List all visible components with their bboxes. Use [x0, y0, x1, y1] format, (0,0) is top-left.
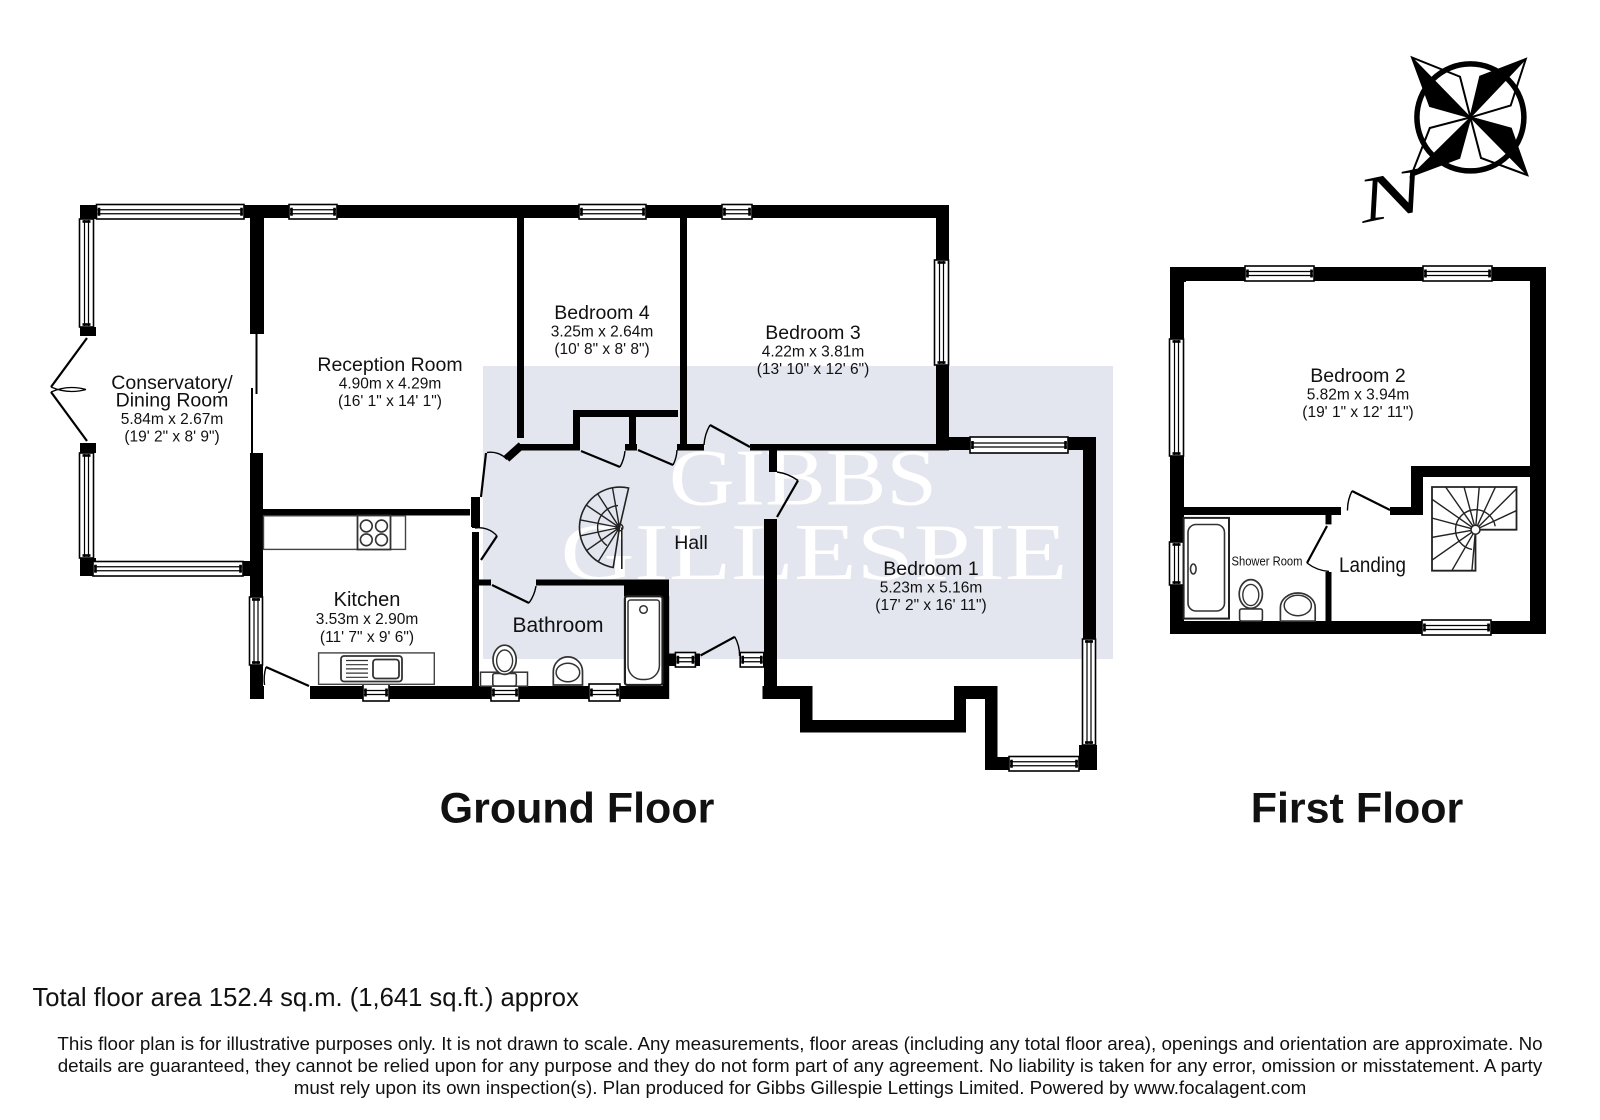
svg-text:(11' 7" x 9' 6"): (11' 7" x 9' 6"): [320, 629, 414, 646]
svg-text:(19' 2" x 8' 9"): (19' 2" x 8' 9"): [124, 429, 219, 446]
svg-text:(13' 10" x 12' 6"): (13' 10" x 12' 6"): [757, 361, 870, 378]
svg-text:must rely upon its own inspect: must rely upon its own inspection(s). Pl…: [294, 1077, 1307, 1098]
svg-text:Ground Floor: Ground Floor: [440, 785, 715, 833]
svg-text:Kitchen: Kitchen: [334, 589, 401, 611]
svg-text:5.84m x 2.67m: 5.84m x 2.67m: [121, 411, 224, 428]
svg-text:Hall: Hall: [674, 532, 708, 554]
svg-text:Bathroom: Bathroom: [512, 614, 603, 637]
svg-text:4.22m x 3.81m: 4.22m x 3.81m: [762, 344, 865, 361]
svg-text:3.25m x 2.64m: 3.25m x 2.64m: [551, 324, 654, 341]
svg-text:Dining Room: Dining Room: [116, 390, 229, 412]
svg-text:Bedroom 4: Bedroom 4: [554, 302, 650, 324]
svg-text:(19' 1" x 12' 11"): (19' 1" x 12' 11"): [1302, 404, 1413, 421]
svg-text:details are guaranteed, they c: details are guaranteed, they cannot be r…: [58, 1055, 1543, 1076]
svg-text:(16' 1" x 14' 1"): (16' 1" x 14' 1"): [338, 393, 442, 410]
svg-text:First Floor: First Floor: [1251, 785, 1464, 833]
svg-text:Reception Room: Reception Room: [317, 354, 462, 376]
svg-text:Landing: Landing: [1339, 553, 1406, 577]
svg-text:Total floor area 152.4 sq.m. (: Total floor area 152.4 sq.m. (1,641 sq.f…: [33, 984, 579, 1012]
svg-text:Bedroom 2: Bedroom 2: [1310, 365, 1405, 387]
svg-text:5.23m x 5.16m: 5.23m x 5.16m: [880, 580, 983, 597]
svg-text:3.53m x 2.90m: 3.53m x 2.90m: [316, 611, 419, 628]
svg-text:(10' 8" x 8' 8"): (10' 8" x 8' 8"): [554, 341, 649, 358]
svg-text:Shower Room: Shower Room: [1232, 554, 1303, 569]
svg-text:Bedroom 3: Bedroom 3: [765, 322, 860, 344]
svg-text:This floor plan is for illustr: This floor plan is for illustrative purp…: [57, 1033, 1542, 1054]
svg-text:(17' 2" x 16' 11"): (17' 2" x 16' 11"): [875, 597, 986, 614]
svg-text:Bedroom 1: Bedroom 1: [883, 558, 978, 580]
svg-text:5.82m x 3.94m: 5.82m x 3.94m: [1307, 387, 1410, 404]
svg-text:4.90m x 4.29m: 4.90m x 4.29m: [339, 376, 442, 393]
